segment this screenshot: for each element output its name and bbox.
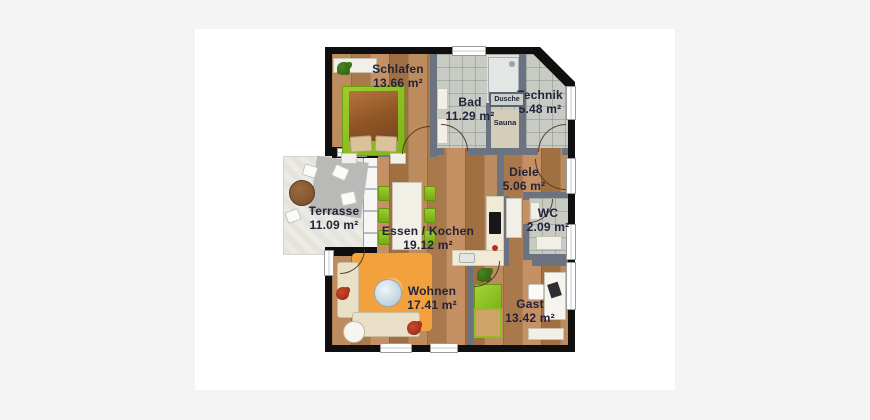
pillow <box>349 135 372 152</box>
window-south-2 <box>430 343 458 353</box>
room-name: Bad <box>458 95 481 109</box>
dining-chair <box>424 208 436 223</box>
room-label-diele: Diele 5.06 m² <box>493 165 555 193</box>
shower-head-icon <box>509 61 515 67</box>
room-area: 19.12 m² <box>373 238 483 252</box>
decor-bowl <box>492 245 498 251</box>
room-label-essen-kochen: Essen / Kochen 19.12 m² <box>373 224 483 252</box>
pillow <box>375 135 398 152</box>
plant-icon <box>407 321 421 335</box>
plant-icon <box>336 287 349 300</box>
room-name: Diele <box>509 165 539 179</box>
room-name: WC <box>538 206 558 220</box>
room-name: Essen / Kochen <box>382 224 474 238</box>
toilet <box>536 236 562 250</box>
room-area: 13.66 m² <box>352 76 444 90</box>
room-name: Gast <box>516 297 543 311</box>
wall-bad-south-b <box>468 148 538 155</box>
sauna-label: Sauna <box>488 118 522 127</box>
dusche-label: Dusche <box>489 92 525 107</box>
room-name: Wohnen <box>408 284 456 298</box>
terrace-table <box>289 180 315 206</box>
nightstand <box>390 153 406 164</box>
kitchen-sink <box>459 253 475 263</box>
room-name: Schlafen <box>372 62 424 76</box>
dining-chair <box>378 208 390 223</box>
room-label-wc: WC 2.09 m² <box>524 206 572 234</box>
window-east-3 <box>566 262 576 310</box>
window-west <box>324 250 334 276</box>
dining-chair <box>378 186 390 201</box>
window-north <box>452 46 486 56</box>
cooktop <box>489 212 501 234</box>
bed-blanket <box>349 91 398 141</box>
dining-chair <box>424 186 436 201</box>
room-label-schlafen: Schlafen 13.66 m² <box>352 62 444 90</box>
room-area: 13.42 m² <box>494 311 566 325</box>
nightstand <box>341 153 357 164</box>
room-area: 11.09 m² <box>293 218 375 232</box>
room-area: 5.06 m² <box>493 179 555 193</box>
floor-plan-page: Schlafen 13.66 m² Bad 11.29 m² Technik 5… <box>0 0 870 420</box>
window-east-entry <box>566 158 576 194</box>
wall-gast-north <box>532 260 568 266</box>
room-label-gast: Gast 13.42 m² <box>494 297 566 325</box>
room-label-terrasse: Terrasse 11.09 m² <box>293 204 375 232</box>
shelf <box>528 328 564 340</box>
room-name: Terrasse <box>309 204 360 218</box>
cabinet <box>506 198 522 238</box>
room-area: 2.09 m² <box>524 220 572 234</box>
room-area: 17.41 m² <box>387 298 477 312</box>
side-table <box>343 321 365 343</box>
window-south-1 <box>380 343 412 353</box>
room-label-wohnen: Wohnen 17.41 m² <box>387 284 477 312</box>
